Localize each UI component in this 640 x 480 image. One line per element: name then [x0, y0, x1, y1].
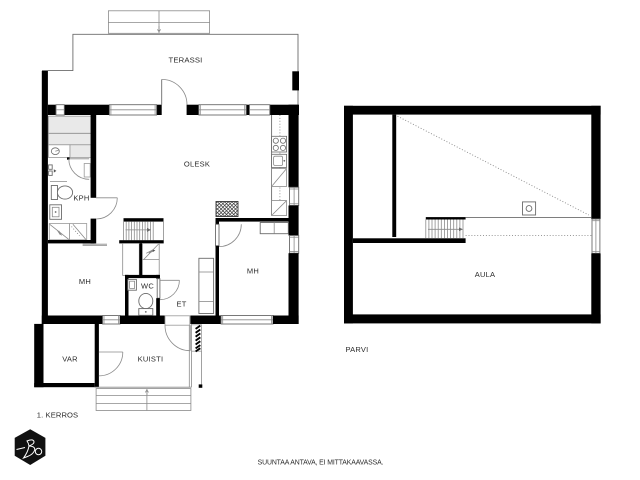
- svg-text:SUUNTAA ANTAVA, EI MITTAKAAVAS: SUUNTAA ANTAVA, EI MITTAKAAVASSA.: [258, 460, 384, 467]
- svg-text:KPH: KPH: [73, 193, 89, 202]
- svg-text:WC: WC: [141, 282, 154, 291]
- svg-text:MH: MH: [79, 277, 91, 286]
- svg-text:VAR: VAR: [62, 355, 78, 364]
- svg-text:TERASSI: TERASSI: [169, 56, 203, 65]
- svg-text:KUISTI: KUISTI: [138, 355, 164, 364]
- svg-text:PARVI: PARVI: [345, 345, 368, 354]
- svg-text:MH: MH: [247, 267, 259, 276]
- svg-text:OLESK: OLESK: [184, 159, 210, 168]
- svg-text:ET: ET: [176, 299, 186, 308]
- svg-text:AULA: AULA: [475, 270, 496, 279]
- svg-text:1. KERROS: 1. KERROS: [37, 410, 78, 419]
